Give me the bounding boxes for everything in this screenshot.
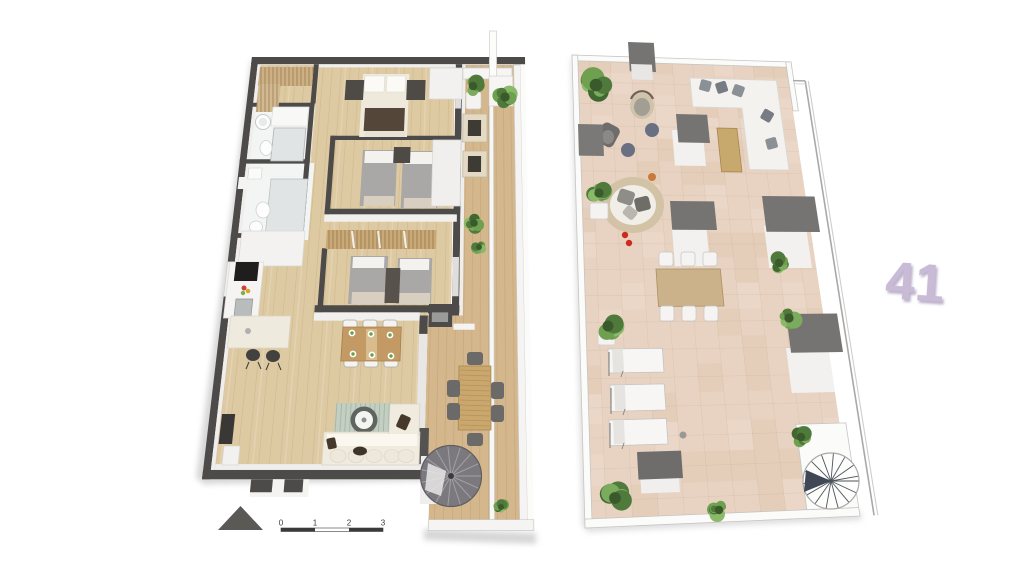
svg-text:1: 1: [313, 519, 318, 528]
svg-text:3: 3: [381, 519, 386, 528]
svg-text:41: 41: [884, 251, 947, 314]
svg-text:2: 2: [347, 519, 352, 528]
svg-text:0: 0: [279, 519, 284, 528]
